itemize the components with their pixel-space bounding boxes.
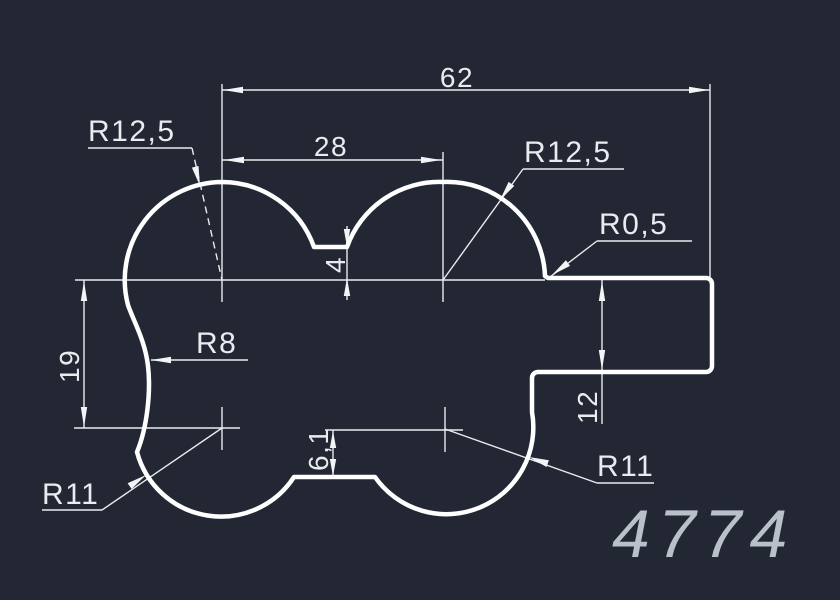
- dim-62-label: 62: [440, 62, 474, 93]
- arrowhead-left-icon: [224, 157, 244, 163]
- cad-canvas: 62 28 19 4 6,1 12 R12,5: [0, 0, 840, 600]
- dim-lobe-spacing: 28: [222, 131, 443, 163]
- arrowhead-up-icon: [81, 281, 87, 301]
- radius-left-cove: R8: [151, 327, 248, 363]
- dim-6-1-label: 6,1: [303, 428, 334, 471]
- arrowhead-down-icon: [81, 407, 87, 427]
- arrowhead-up-icon: [344, 278, 350, 296]
- dim-12-label: 12: [572, 390, 603, 424]
- radius-r12-5-right-label: R12,5: [524, 136, 612, 169]
- arrowhead-down-icon: [599, 350, 605, 370]
- arrowhead-icon: [552, 260, 570, 275]
- arrowhead-up-icon: [599, 281, 605, 301]
- arrowhead-left-icon: [223, 87, 243, 93]
- radius-r12-5-left-label: R12,5: [88, 115, 176, 148]
- dim-4-label: 4: [320, 256, 351, 273]
- dim-top-notch-depth: 4: [320, 226, 351, 300]
- dim-28-label: 28: [314, 131, 348, 162]
- dim-19-label: 19: [54, 349, 85, 383]
- leader-line: [102, 428, 222, 510]
- radius-r0-5-label: R0,5: [599, 208, 668, 241]
- dim-total-width: 62: [222, 62, 710, 93]
- radius-bottom-left: R11: [42, 428, 222, 511]
- radius-step-corner: R0,5: [550, 208, 692, 277]
- dim-bottom-notch-depth: 6,1: [303, 428, 336, 477]
- arrowhead-right-icon: [689, 87, 709, 93]
- arrowhead-icon: [529, 457, 549, 467]
- arrowhead-right-icon: [421, 157, 441, 163]
- dim-left-height: 19: [54, 280, 87, 428]
- dim-tab-height: 12: [572, 279, 605, 424]
- radius-r11-left-label: R11: [42, 478, 99, 511]
- technical-drawing: 62 28 19 4 6,1 12 R12,5: [0, 0, 840, 600]
- radius-bottom-right: R11: [445, 429, 654, 483]
- part-number: 4774: [612, 496, 795, 572]
- arrowhead-icon: [151, 357, 171, 363]
- radius-top-left: R12,5: [88, 115, 222, 280]
- radius-r11-right-label: R11: [597, 450, 654, 483]
- radius-top-right: R12,5: [443, 136, 624, 280]
- radius-r8-label: R8: [196, 327, 237, 360]
